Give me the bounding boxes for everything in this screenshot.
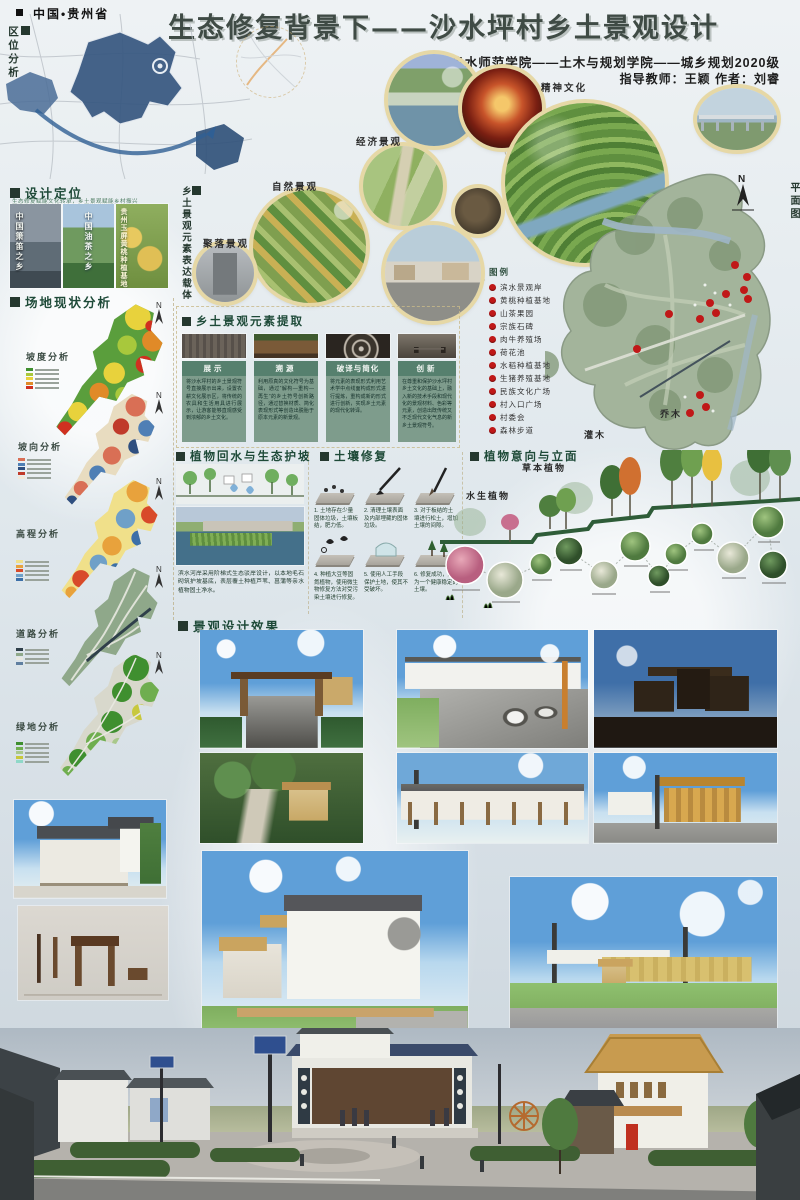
legend-item: 生猪养殖基地: [489, 372, 561, 385]
extraction-col-4-text: 在尊重和保护沙水坪村乡土文化的基础上，融入新的技术手段和现代化的景观材料、色彩等…: [398, 376, 456, 442]
extraction-col-1-title: 展示: [182, 361, 246, 376]
soil-step-2-caption: 2. 清理土壤表面及内部埋藏的固体垃圾。: [364, 508, 408, 531]
north-arrow: N: [152, 476, 166, 502]
legend-item: 森林步道: [489, 424, 561, 437]
soil-step-1-illustration: [314, 466, 360, 506]
legend-item: 荷花池: [489, 346, 561, 359]
extraction-col-2-text: 利用原真的文化符号为基础，通过“解构—重构—再生”的乡土符号创新路径，通过替换材…: [254, 376, 318, 442]
legend-dot-icon: [489, 375, 496, 382]
elevation-analysis-legend: [16, 560, 49, 581]
positioning-card-1-label: 中国箫笛之乡: [14, 212, 25, 272]
plan-legend-title: 图例: [489, 266, 561, 278]
legend-dot-icon: [489, 284, 496, 291]
bridge-photo-circle: [697, 88, 777, 150]
road-analysis-legend: [16, 648, 49, 665]
slope-planting-sketch: [176, 464, 304, 504]
spirit-culture-label: 精神文化: [541, 80, 587, 94]
green-analysis-legend: [16, 742, 49, 763]
waterside-pavilion-render: [594, 630, 777, 748]
svg-text:N: N: [156, 391, 162, 400]
legend-dot-icon: [489, 310, 496, 317]
section-soil-header: 土壤修复: [320, 448, 388, 464]
soil-step-5-caption: 5. 使用人工手段保护土地，使其不受破坏。: [364, 572, 408, 595]
soil-step-1-caption: 1. 土地存在少量固体垃圾，土壤板结，肥力低。: [314, 508, 358, 531]
legend-item: 宗族石碑: [489, 320, 561, 333]
north-arrow: N: [152, 650, 166, 676]
extraction-col-3-text: 将元素的表现形式利用艺术学中点线面构成形式进行提炼，重构成新的形式进行创新，实现…: [326, 376, 390, 442]
soil-step-5-illustration: [364, 534, 410, 568]
svg-text:N: N: [738, 174, 745, 185]
positioning-card-3-label: 贵州玉屏黄桃种植基地: [118, 208, 128, 288]
svg-text:N: N: [156, 301, 162, 310]
legend-dot-icon: [489, 297, 496, 304]
gate-elevation-render: [18, 906, 168, 1000]
svg-text:N: N: [156, 477, 162, 486]
farmhouse-render: [202, 851, 468, 1031]
cattle-photo-circle: [455, 188, 501, 234]
planting-elevation-diagram: [440, 450, 800, 618]
village-square-panorama: [0, 1028, 800, 1200]
plan-vertical-label: 平面图: [786, 182, 800, 221]
entrance-gate-render: [200, 630, 363, 748]
dashed-divider: [308, 452, 309, 614]
economic-photo-circle: [363, 146, 443, 226]
parking-lot-render: [397, 630, 588, 748]
legend-item: 黄桃种植基地: [489, 294, 561, 307]
settlement-label: 聚落景观: [203, 236, 249, 250]
design-poster: 中国•贵州省 生态修复背景下——沙水坪村乡土景观设计 六盘水师范学院——土木与规…: [0, 0, 800, 1200]
legend-item: 村入口广场: [489, 398, 561, 411]
north-arrow: N: [152, 300, 166, 326]
legend-dot-icon: [489, 362, 496, 369]
positioning-card-2-label: 中国油茶之乡: [83, 212, 94, 272]
plan-legend: 图例 滨水景观岸 黄桃种植基地 山茶果园 宗族石碑 肉牛养殖场 荷花池 水稻种植…: [489, 266, 561, 437]
legend-dot-icon: [489, 414, 496, 421]
street-facade-render: [397, 753, 588, 843]
field-roadside-render: [510, 877, 777, 1031]
economic-label: 经济景观: [356, 134, 402, 148]
aspect-analysis-legend: [18, 458, 51, 479]
extraction-col-4-title: 创新: [398, 361, 456, 376]
settlement-photo-circle: [196, 244, 254, 302]
extraction-photo-pattern: [326, 334, 390, 358]
extraction-photo-tools: [182, 334, 246, 358]
legend-dot-icon: [489, 388, 496, 395]
natural-label: 自然景观: [272, 179, 318, 193]
extraction-col-2-title: 溯源: [254, 361, 318, 376]
legend-dot-icon: [489, 349, 496, 356]
legend-item: 民族文化广场: [489, 385, 561, 398]
legend-dot-icon: [489, 323, 496, 330]
positioning-card-2: 中国油茶之乡: [63, 204, 114, 288]
legend-item: 村委会: [489, 411, 561, 424]
legend-item: 滨水景观岸: [489, 281, 561, 294]
cottage-render: [14, 800, 166, 898]
extraction-photo-house: [254, 334, 318, 358]
legend-item: 肉牛养殖场: [489, 333, 561, 346]
dashed-divider: [173, 298, 174, 620]
legend-item: 山茶果园: [489, 307, 561, 320]
shrub-label: 灌木: [584, 428, 606, 441]
positioning-card-1: 中国箫笛之乡: [10, 204, 61, 288]
extraction-col-1-text: 将沙水坪村的乡土景观符号直接展示出来，设置农耕文化展示区，将传统的农具和生活用具…: [182, 376, 246, 442]
arbor-label: 乔木: [660, 407, 682, 420]
legend-dot-icon: [489, 427, 496, 434]
plan-north-arrow: N: [728, 172, 758, 214]
extraction-col-3-title: 破译与简化: [326, 361, 390, 376]
legend-dot-icon: [489, 336, 496, 343]
forest-gazebo-render: [200, 753, 363, 843]
natural-photo-circle: [253, 190, 366, 303]
timber-building-render: [594, 753, 777, 843]
soil-step-4-caption: 4. 种植大豆等固氮植物，使用微生物修复方法对受污染土壤进行修复。: [314, 572, 358, 603]
north-arrow: N: [152, 564, 166, 590]
riverbank-render: [176, 507, 304, 565]
section-slope-header: 植物回水与生态护坡: [176, 448, 312, 464]
svg-text:N: N: [156, 565, 162, 574]
slope-paragraph: 滨水河岸采用阶梯式生态驳岸设计，以本地毛石砌筑护坡基底，表层覆土种植芦苇、菖蒲等…: [178, 570, 304, 595]
svg-text:N: N: [156, 651, 162, 660]
legend-item: 水稻种植基地: [489, 359, 561, 372]
section-extraction-header: 乡土景观元素提取: [182, 313, 304, 329]
soil-step-4-illustration: [314, 534, 360, 568]
legend-dot-icon: [489, 401, 496, 408]
soil-step-2-illustration: [364, 466, 410, 506]
positioning-card-3: 贵州玉屏黄桃种植基地: [116, 204, 168, 288]
north-arrow: N: [152, 390, 166, 416]
extraction-photo-furniture: [398, 334, 456, 358]
